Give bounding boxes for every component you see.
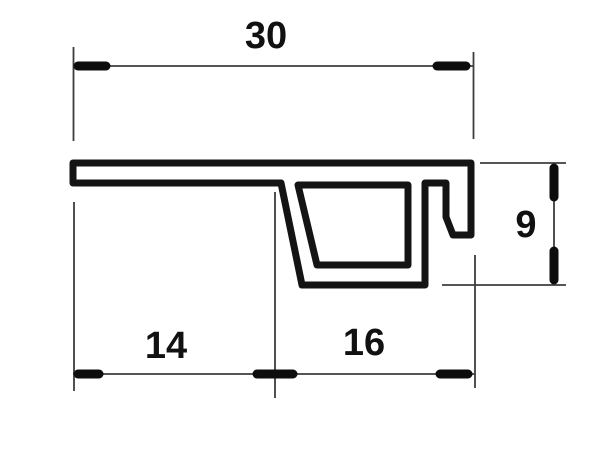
drawing-canvas: 30 14 16 9 <box>0 0 600 450</box>
profile-shape-group <box>73 163 471 285</box>
dim-label-left-width: 14 <box>145 325 187 367</box>
dim-label-right-width: 16 <box>343 322 385 364</box>
dim-label-right-height: 9 <box>515 204 536 246</box>
profile-drawing-svg: 30 14 16 9 <box>0 0 600 450</box>
profile-chamber-inner-contour <box>298 185 408 265</box>
dim-label-total-width: 30 <box>245 15 287 57</box>
